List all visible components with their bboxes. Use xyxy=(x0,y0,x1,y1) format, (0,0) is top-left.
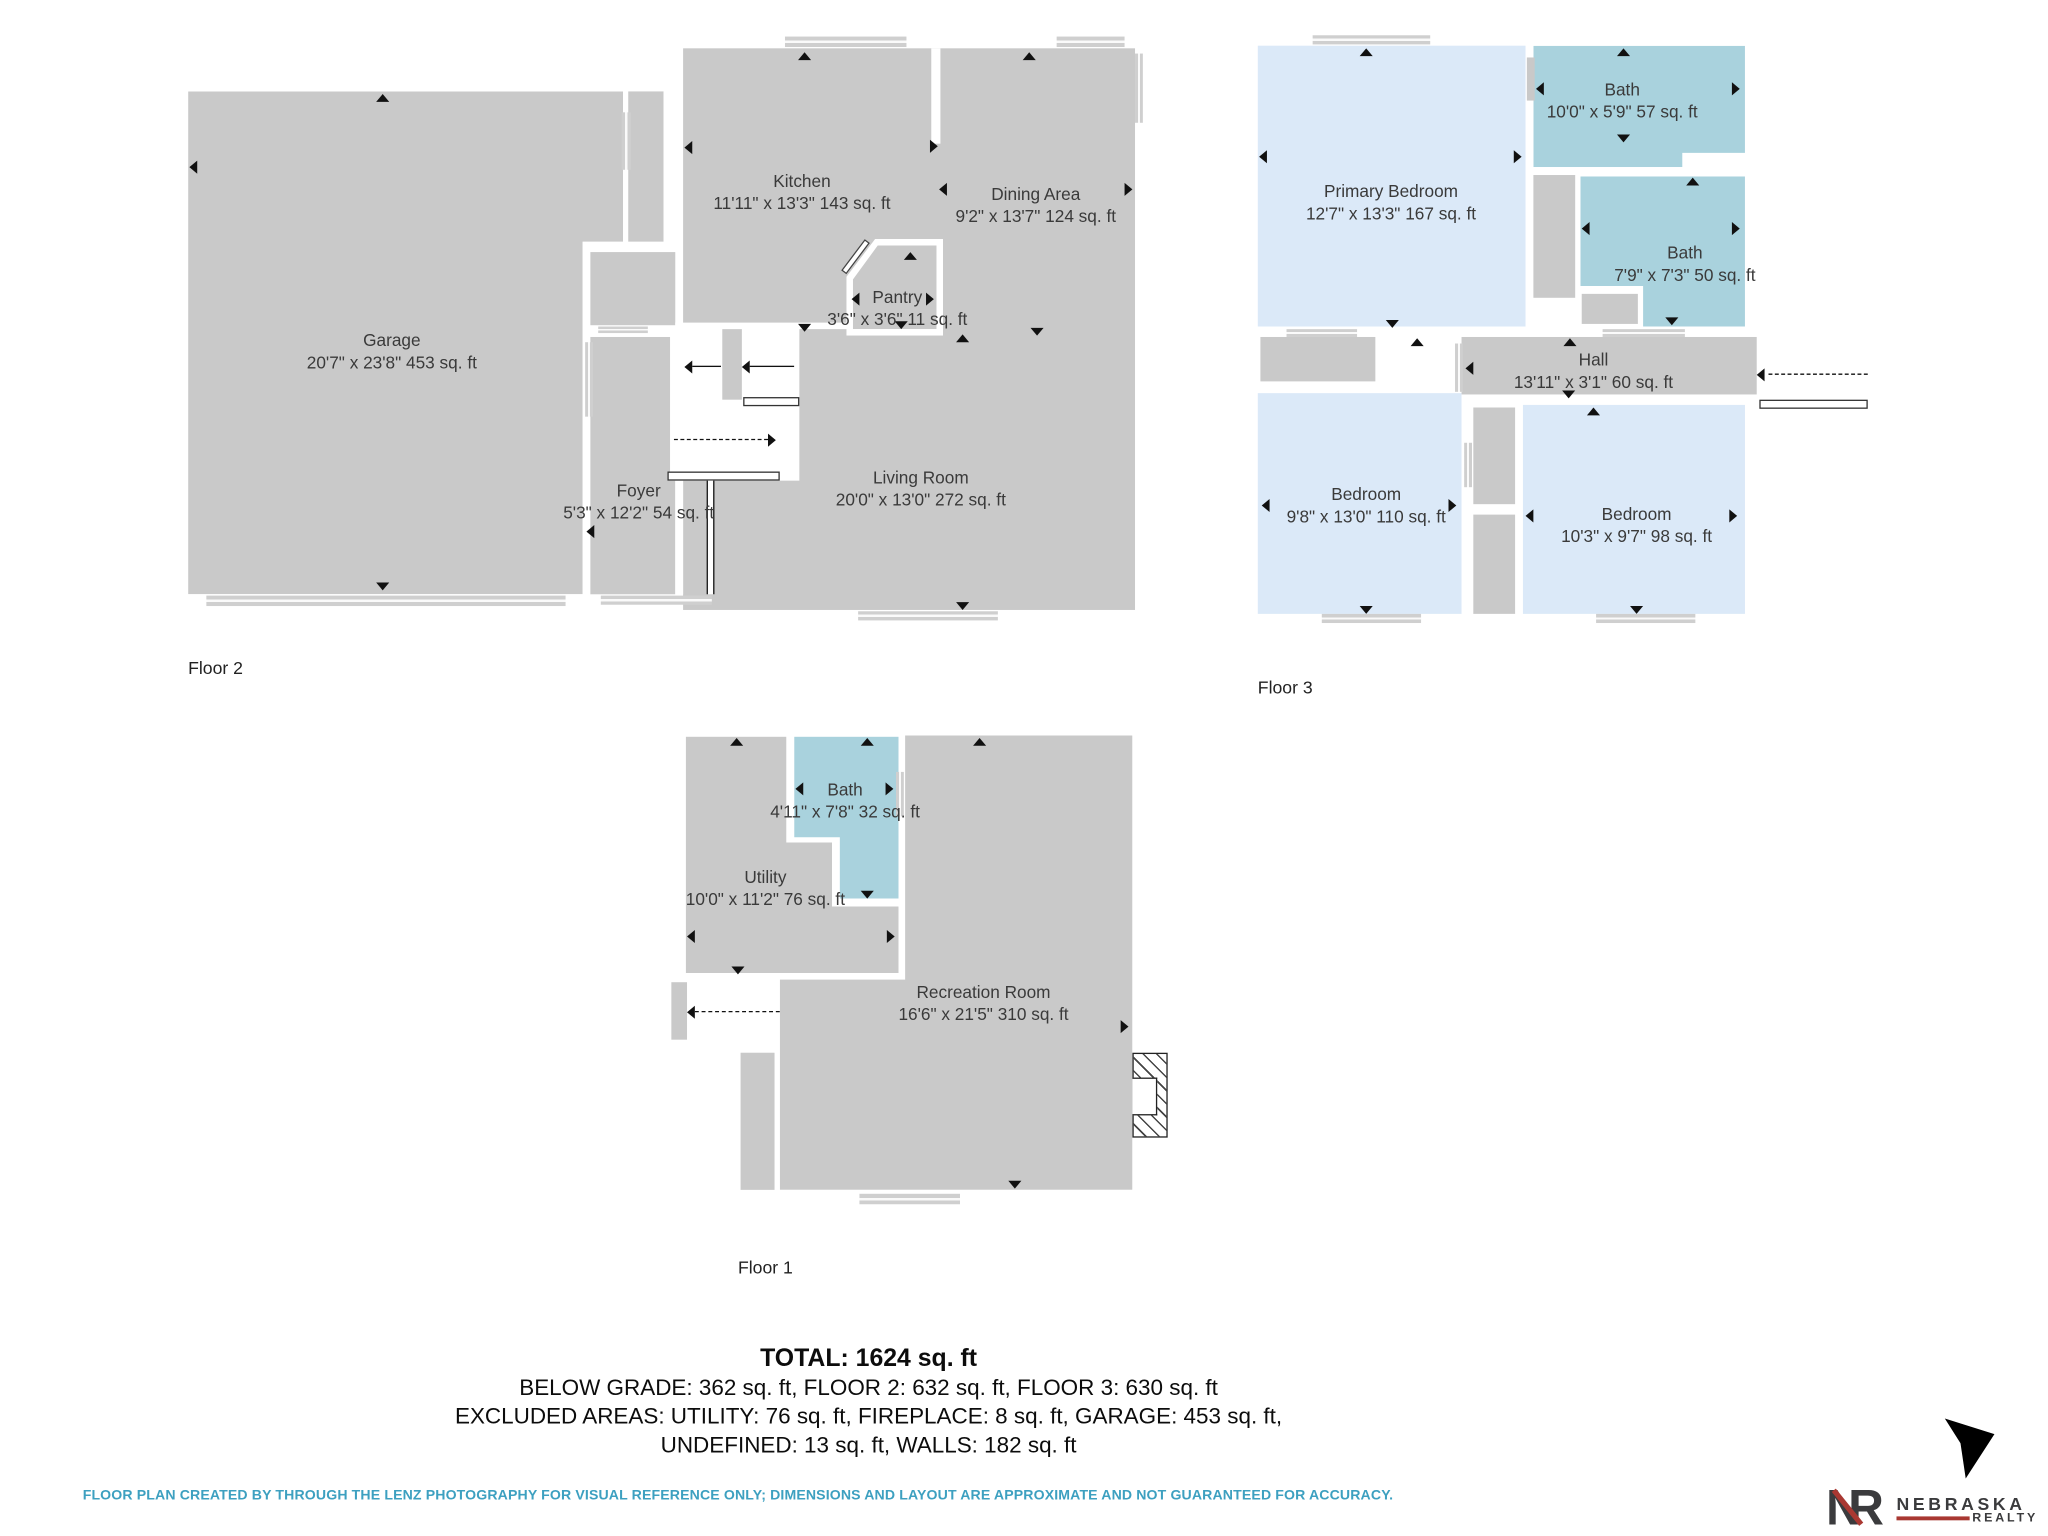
door-arrow-icon xyxy=(1526,509,1534,522)
door-arrow-icon xyxy=(861,738,874,746)
room-label: Bedroom9'8" x 13'0" 110 sq. ft xyxy=(1287,485,1446,528)
room-label: Recreation Room16'6" x 21'5" 310 sq. ft xyxy=(898,982,1068,1025)
door-arrow-icon xyxy=(1536,82,1544,95)
summary-line: EXCLUDED AREAS: UTILITY: 76 sq. ft, FIRE… xyxy=(455,1403,1282,1431)
stair-arrow-icon xyxy=(768,434,776,447)
door-arrow-icon xyxy=(798,52,811,60)
room-label: Bath4'11" x 7'8" 32 sq. ft xyxy=(770,780,920,823)
floor-label: Floor 3 xyxy=(1258,678,1313,698)
room-label: Bath10'0" x 5'9" 57 sq. ft xyxy=(1547,80,1698,123)
window-marker xyxy=(1455,344,1463,392)
window-marker xyxy=(1287,329,1358,337)
stoop-edge xyxy=(1759,400,1867,409)
stair-post xyxy=(722,329,742,400)
stair-arrow-icon xyxy=(684,360,692,373)
window-marker xyxy=(585,342,593,416)
room-label: Living Room20'0" x 13'0" 272 sq. ft xyxy=(836,468,1006,511)
stoop-block xyxy=(671,982,687,1039)
door-arrow-icon xyxy=(1729,509,1737,522)
stair-arrow-icon xyxy=(742,360,750,373)
room-foyer xyxy=(590,337,675,594)
summary-line: UNDEFINED: 13 sq. ft, WALLS: 182 sq. ft xyxy=(455,1431,1282,1459)
room-label: Bedroom10'3" x 9'7" 98 sq. ft xyxy=(1561,504,1712,547)
brand-sub: REALTY xyxy=(1972,1511,2038,1525)
door-arrow-icon xyxy=(798,324,811,332)
stair-landing-edge xyxy=(743,397,799,406)
door-arrow-icon xyxy=(684,141,692,154)
door-arrow-icon xyxy=(1587,408,1600,416)
door-arrow-icon xyxy=(1360,48,1373,56)
door-arrow-icon xyxy=(1617,48,1630,56)
deck-marker xyxy=(1057,37,1125,47)
window-marker xyxy=(1464,443,1472,487)
wall-bar xyxy=(1533,175,1575,298)
door-arrow-icon xyxy=(1732,82,1740,95)
door-arrow-icon xyxy=(1259,150,1267,163)
svg-text:R: R xyxy=(1848,1481,1884,1533)
floor-label: Floor 2 xyxy=(188,658,243,678)
closet-block xyxy=(590,252,675,325)
door-arrow-icon xyxy=(956,602,969,610)
nebraska-realty-logo: N R NEBRASKA REALTY xyxy=(1826,1481,2035,1536)
window-marker xyxy=(1313,35,1431,44)
door-arrow-icon xyxy=(1514,150,1522,163)
window-marker xyxy=(858,611,998,620)
wall-bar xyxy=(1527,57,1535,100)
window-marker xyxy=(1322,614,1421,623)
door-arrow-icon xyxy=(1686,178,1699,186)
area-summary: TOTAL: 1624 sq. ft BELOW GRADE: 362 sq. … xyxy=(455,1344,1282,1459)
room-label: Hall13'11" x 3'1" 60 sq. ft xyxy=(1514,350,1673,393)
door-arrow-icon xyxy=(1630,606,1643,614)
window-marker xyxy=(1603,329,1685,337)
window-marker xyxy=(1596,614,1695,623)
stair-run-line xyxy=(674,439,768,440)
divider-block xyxy=(1473,515,1515,614)
entry-arrow-icon xyxy=(687,1006,695,1019)
wall-gap xyxy=(931,48,940,143)
door-arrow-icon xyxy=(1386,320,1399,328)
window-marker xyxy=(1135,54,1143,123)
room-label: Garage20'7" x 23'8" 453 sq. ft xyxy=(307,330,477,373)
door-arrow-icon xyxy=(189,161,197,174)
summary-line: BELOW GRADE: 362 sq. ft, FLOOR 2: 632 sq… xyxy=(455,1374,1282,1402)
door-arrow-icon xyxy=(1262,499,1270,512)
door-arrow-icon xyxy=(376,583,389,591)
door-arrow-icon xyxy=(930,140,938,153)
door-arrow-icon xyxy=(1582,222,1590,235)
door-arrow-icon xyxy=(1563,338,1576,346)
stair-run-line xyxy=(692,366,721,367)
closet-block xyxy=(741,1053,775,1190)
door-arrow-icon xyxy=(376,94,389,102)
room-label: Utility10'0" x 11'2" 76 sq. ft xyxy=(686,867,845,910)
window-marker xyxy=(598,327,648,334)
room-label: Kitchen11'11" x 13'3" 143 sq. ft xyxy=(713,171,890,214)
door-arrow-icon xyxy=(1732,222,1740,235)
door-arrow-icon xyxy=(730,738,743,746)
entry-arrow-icon xyxy=(1757,368,1765,381)
divider-block xyxy=(1473,408,1515,505)
door-arrow-icon xyxy=(861,891,874,899)
door-arrow-icon xyxy=(1023,52,1036,60)
door-arrow-icon xyxy=(1121,1020,1129,1033)
window-marker xyxy=(859,1194,960,1204)
room-label: Pantry3'6" x 3'6" 11 sq. ft xyxy=(827,287,967,330)
door-arrow-icon xyxy=(1465,362,1473,375)
door-arrow-icon xyxy=(973,738,986,746)
door-arrow-icon xyxy=(956,334,969,342)
deck-marker xyxy=(785,37,906,47)
nr-monogram-icon: N R xyxy=(1826,1481,1891,1533)
entry-door-line xyxy=(1768,374,1867,375)
door-arrow-icon xyxy=(1665,317,1678,325)
window-marker xyxy=(622,112,631,169)
total-area: TOTAL: 1624 sq. ft xyxy=(455,1344,1282,1374)
door-arrow-icon xyxy=(1125,183,1133,196)
door-arrow-icon xyxy=(887,930,895,943)
door-arrow-icon xyxy=(731,967,744,975)
brand-underline xyxy=(1896,1516,1969,1519)
door-arrow-icon xyxy=(1411,338,1424,346)
door-arrow-icon xyxy=(939,183,947,196)
door-arrow-icon xyxy=(1008,1181,1021,1189)
fireplace-notch xyxy=(1132,1078,1157,1116)
wall-strip xyxy=(628,91,663,241)
floor-plan-canvas: Garage20'7" x 23'8" 453 sq. ft Kitchen11… xyxy=(0,0,2048,1536)
door-arrow-icon xyxy=(1031,328,1044,336)
stair-run-line xyxy=(750,366,794,367)
door-arrow-icon xyxy=(1360,606,1373,614)
room-label: Primary Bedroom12'7" x 13'3" 167 sq. ft xyxy=(1306,182,1476,225)
north-arrow-icon xyxy=(1941,1417,1998,1489)
floor-label: Floor 1 xyxy=(738,1258,793,1278)
door-arrow-icon xyxy=(586,525,594,538)
stair-landing-edge xyxy=(667,472,779,481)
room-label: Dining Area9'2" x 13'7" 124 sq. ft xyxy=(955,184,1116,227)
closet-block xyxy=(1582,294,1638,324)
disclaimer-text: FLOOR PLAN CREATED BY THROUGH THE LENZ P… xyxy=(83,1488,1394,1504)
room-label: Bath7'9" x 7'3" 50 sq. ft xyxy=(1614,243,1755,286)
entry-door-line xyxy=(695,1011,780,1012)
door-arrow-icon xyxy=(1617,135,1630,143)
door-arrow-icon xyxy=(1448,499,1456,512)
closet-block xyxy=(1260,337,1375,381)
door-arrow-icon xyxy=(904,252,917,260)
room-label: Foyer5'3" x 12'2" 54 sq. ft xyxy=(563,481,714,524)
garage-door-marker xyxy=(206,596,565,606)
door-arrow-icon xyxy=(687,930,695,943)
window-marker xyxy=(601,596,712,605)
